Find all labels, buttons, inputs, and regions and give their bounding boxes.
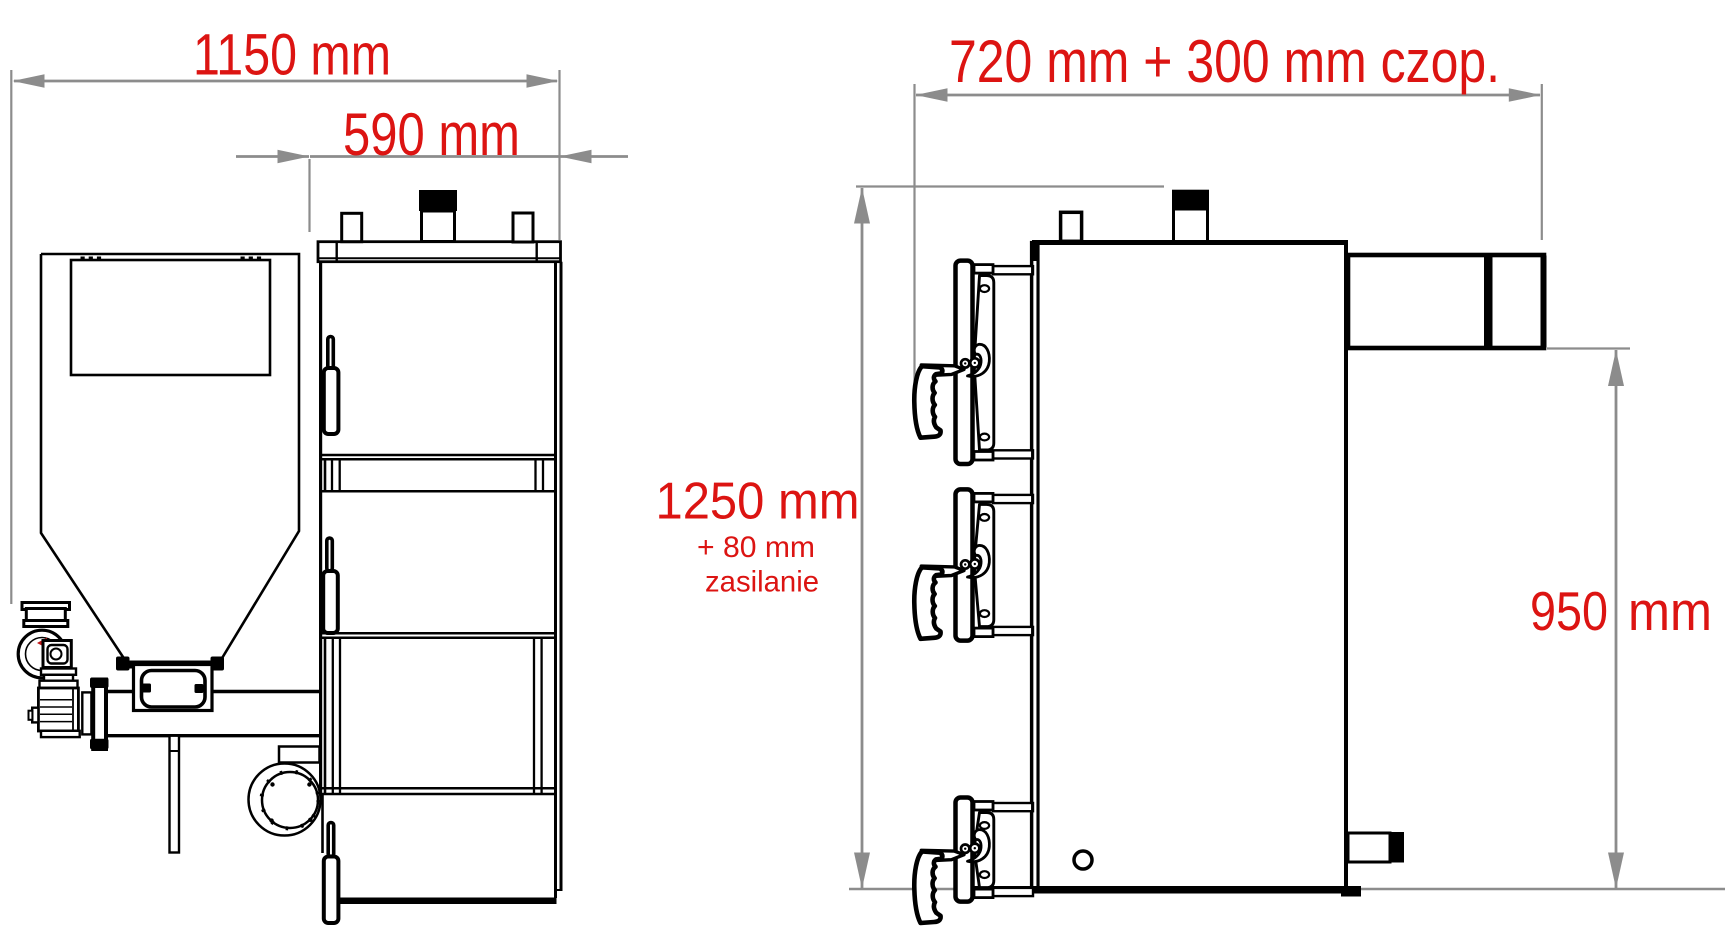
svg-text:1150 mm: 1150 mm <box>193 23 391 88</box>
svg-text:720 mm + 300 mm czop.: 720 mm + 300 mm czop. <box>949 28 1500 95</box>
svg-text:zasilanie: zasilanie <box>705 566 819 599</box>
svg-text:+ 80 mm: + 80 mm <box>697 531 815 564</box>
svg-text:590 mm: 590 mm <box>343 101 520 168</box>
svg-text:950: 950 <box>1530 580 1608 642</box>
svg-text:mm: mm <box>1628 580 1712 642</box>
svg-text:1250 mm: 1250 mm <box>656 473 860 531</box>
